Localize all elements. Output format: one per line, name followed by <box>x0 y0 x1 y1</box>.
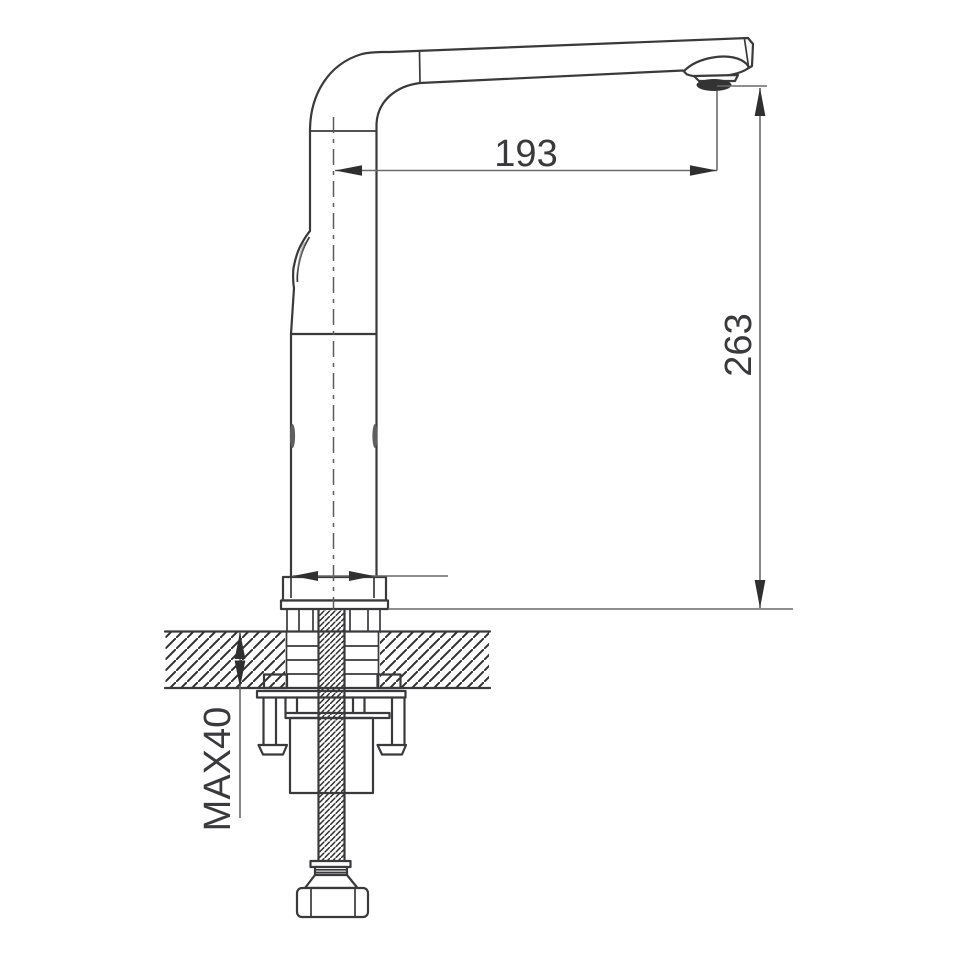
rod-end-cone <box>305 875 358 888</box>
faucet-outline <box>290 38 753 577</box>
rod-end-ribbed <box>315 867 347 875</box>
dim-193-label: 193 <box>494 133 557 175</box>
threaded-rod <box>319 610 345 861</box>
countertop-hatch-right <box>380 633 489 688</box>
spout-seam <box>420 52 421 84</box>
rod-end-assembly <box>297 861 368 917</box>
flange-lower <box>281 601 388 610</box>
base-flange <box>281 577 388 609</box>
dimension-height: 263 <box>388 86 793 609</box>
countertop-hatch-left <box>166 633 286 688</box>
flange-upper <box>283 577 386 601</box>
arrowhead-down <box>755 580 766 608</box>
mounting-nut <box>297 888 368 917</box>
dimension-spout-reach: 193 <box>335 91 717 176</box>
aerator-outlet <box>697 79 732 91</box>
dim-263-label: 263 <box>718 313 760 376</box>
dim-max40-label: MAX40 <box>197 707 239 832</box>
arrowhead-right <box>690 165 717 175</box>
arrowhead-up <box>755 88 766 116</box>
edge-shading-right <box>372 424 377 448</box>
bracket-foot-left <box>259 745 288 755</box>
drawing-canvas: 193 263 MAX40 <box>0 0 956 956</box>
faucet-dimension-drawing: 193 263 MAX40 <box>0 0 956 956</box>
faucet-body <box>291 38 753 577</box>
bracket-foot-right <box>378 745 407 755</box>
edge-shading-left <box>290 424 295 448</box>
